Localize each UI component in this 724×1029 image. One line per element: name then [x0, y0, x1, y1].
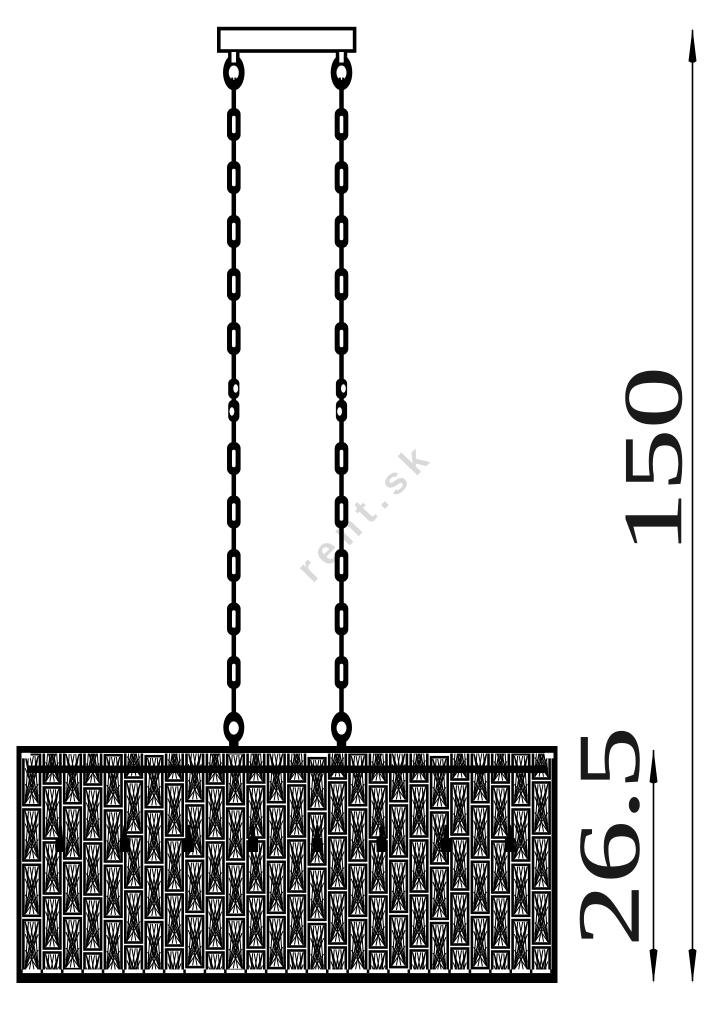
svg-text:26.5: 26.5 [561, 726, 658, 946]
svg-text:150: 150 [607, 366, 700, 554]
